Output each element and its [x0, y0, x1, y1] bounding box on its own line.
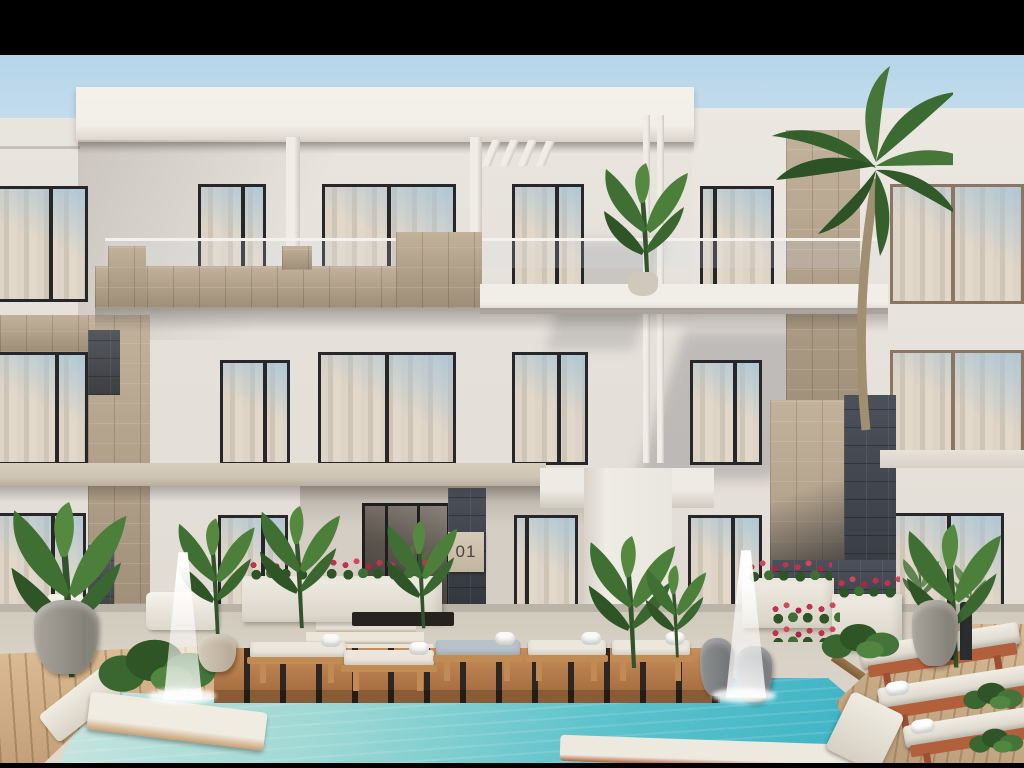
fountain-splash-left	[148, 688, 216, 704]
palm-trunk	[861, 179, 876, 430]
window-mullion	[263, 362, 267, 463]
sun-lounger	[344, 638, 434, 696]
window-mid-3	[318, 352, 456, 465]
window-top-1	[0, 186, 88, 302]
window-mullion	[385, 354, 389, 463]
palm-crown	[772, 66, 953, 256]
stone-pillar-dark-patch	[88, 330, 120, 395]
parapet-edge	[0, 146, 80, 149]
window-mid-1	[0, 352, 88, 465]
plant-pot-right	[912, 600, 958, 666]
entrance-palm	[378, 520, 466, 630]
window-mid-4	[512, 352, 588, 465]
shrub-right	[820, 606, 906, 666]
letterbox-top	[0, 0, 1024, 55]
fountain-splash-right	[712, 688, 776, 703]
window-mullion	[557, 354, 561, 463]
slab-band-right	[880, 450, 1024, 468]
window-mid-2	[220, 360, 290, 465]
palm-tree	[728, 44, 953, 434]
render-stage: 01	[0, 0, 1024, 768]
shrub-corner	[968, 706, 1024, 768]
window-mullion	[49, 188, 53, 300]
roof-column	[286, 137, 300, 247]
flowers-center-right	[746, 558, 832, 584]
balcony-plant-pot	[628, 272, 658, 296]
wood-deck-center-face	[214, 690, 720, 703]
sun-lounger	[250, 630, 346, 688]
roof-column	[470, 137, 482, 235]
sun-lounger	[436, 628, 520, 686]
balcony-stone-pier	[108, 246, 146, 308]
roof-slab	[76, 87, 694, 142]
beige-pot	[198, 634, 236, 672]
window-mullion	[731, 517, 735, 610]
letterbox-bottom	[0, 763, 1024, 768]
balcony-stone-pier	[282, 246, 312, 270]
plant-behind-planter	[250, 506, 350, 630]
stone-band-left	[0, 315, 88, 352]
window-mullion	[55, 354, 59, 463]
balcony-stone-block	[396, 232, 482, 308]
floor-slab-band	[0, 463, 546, 486]
flowers-right	[836, 574, 900, 600]
rolled-towel	[321, 634, 341, 647]
rolled-towel	[495, 632, 515, 645]
plant-pot	[34, 600, 98, 674]
rolled-towel	[409, 642, 429, 655]
